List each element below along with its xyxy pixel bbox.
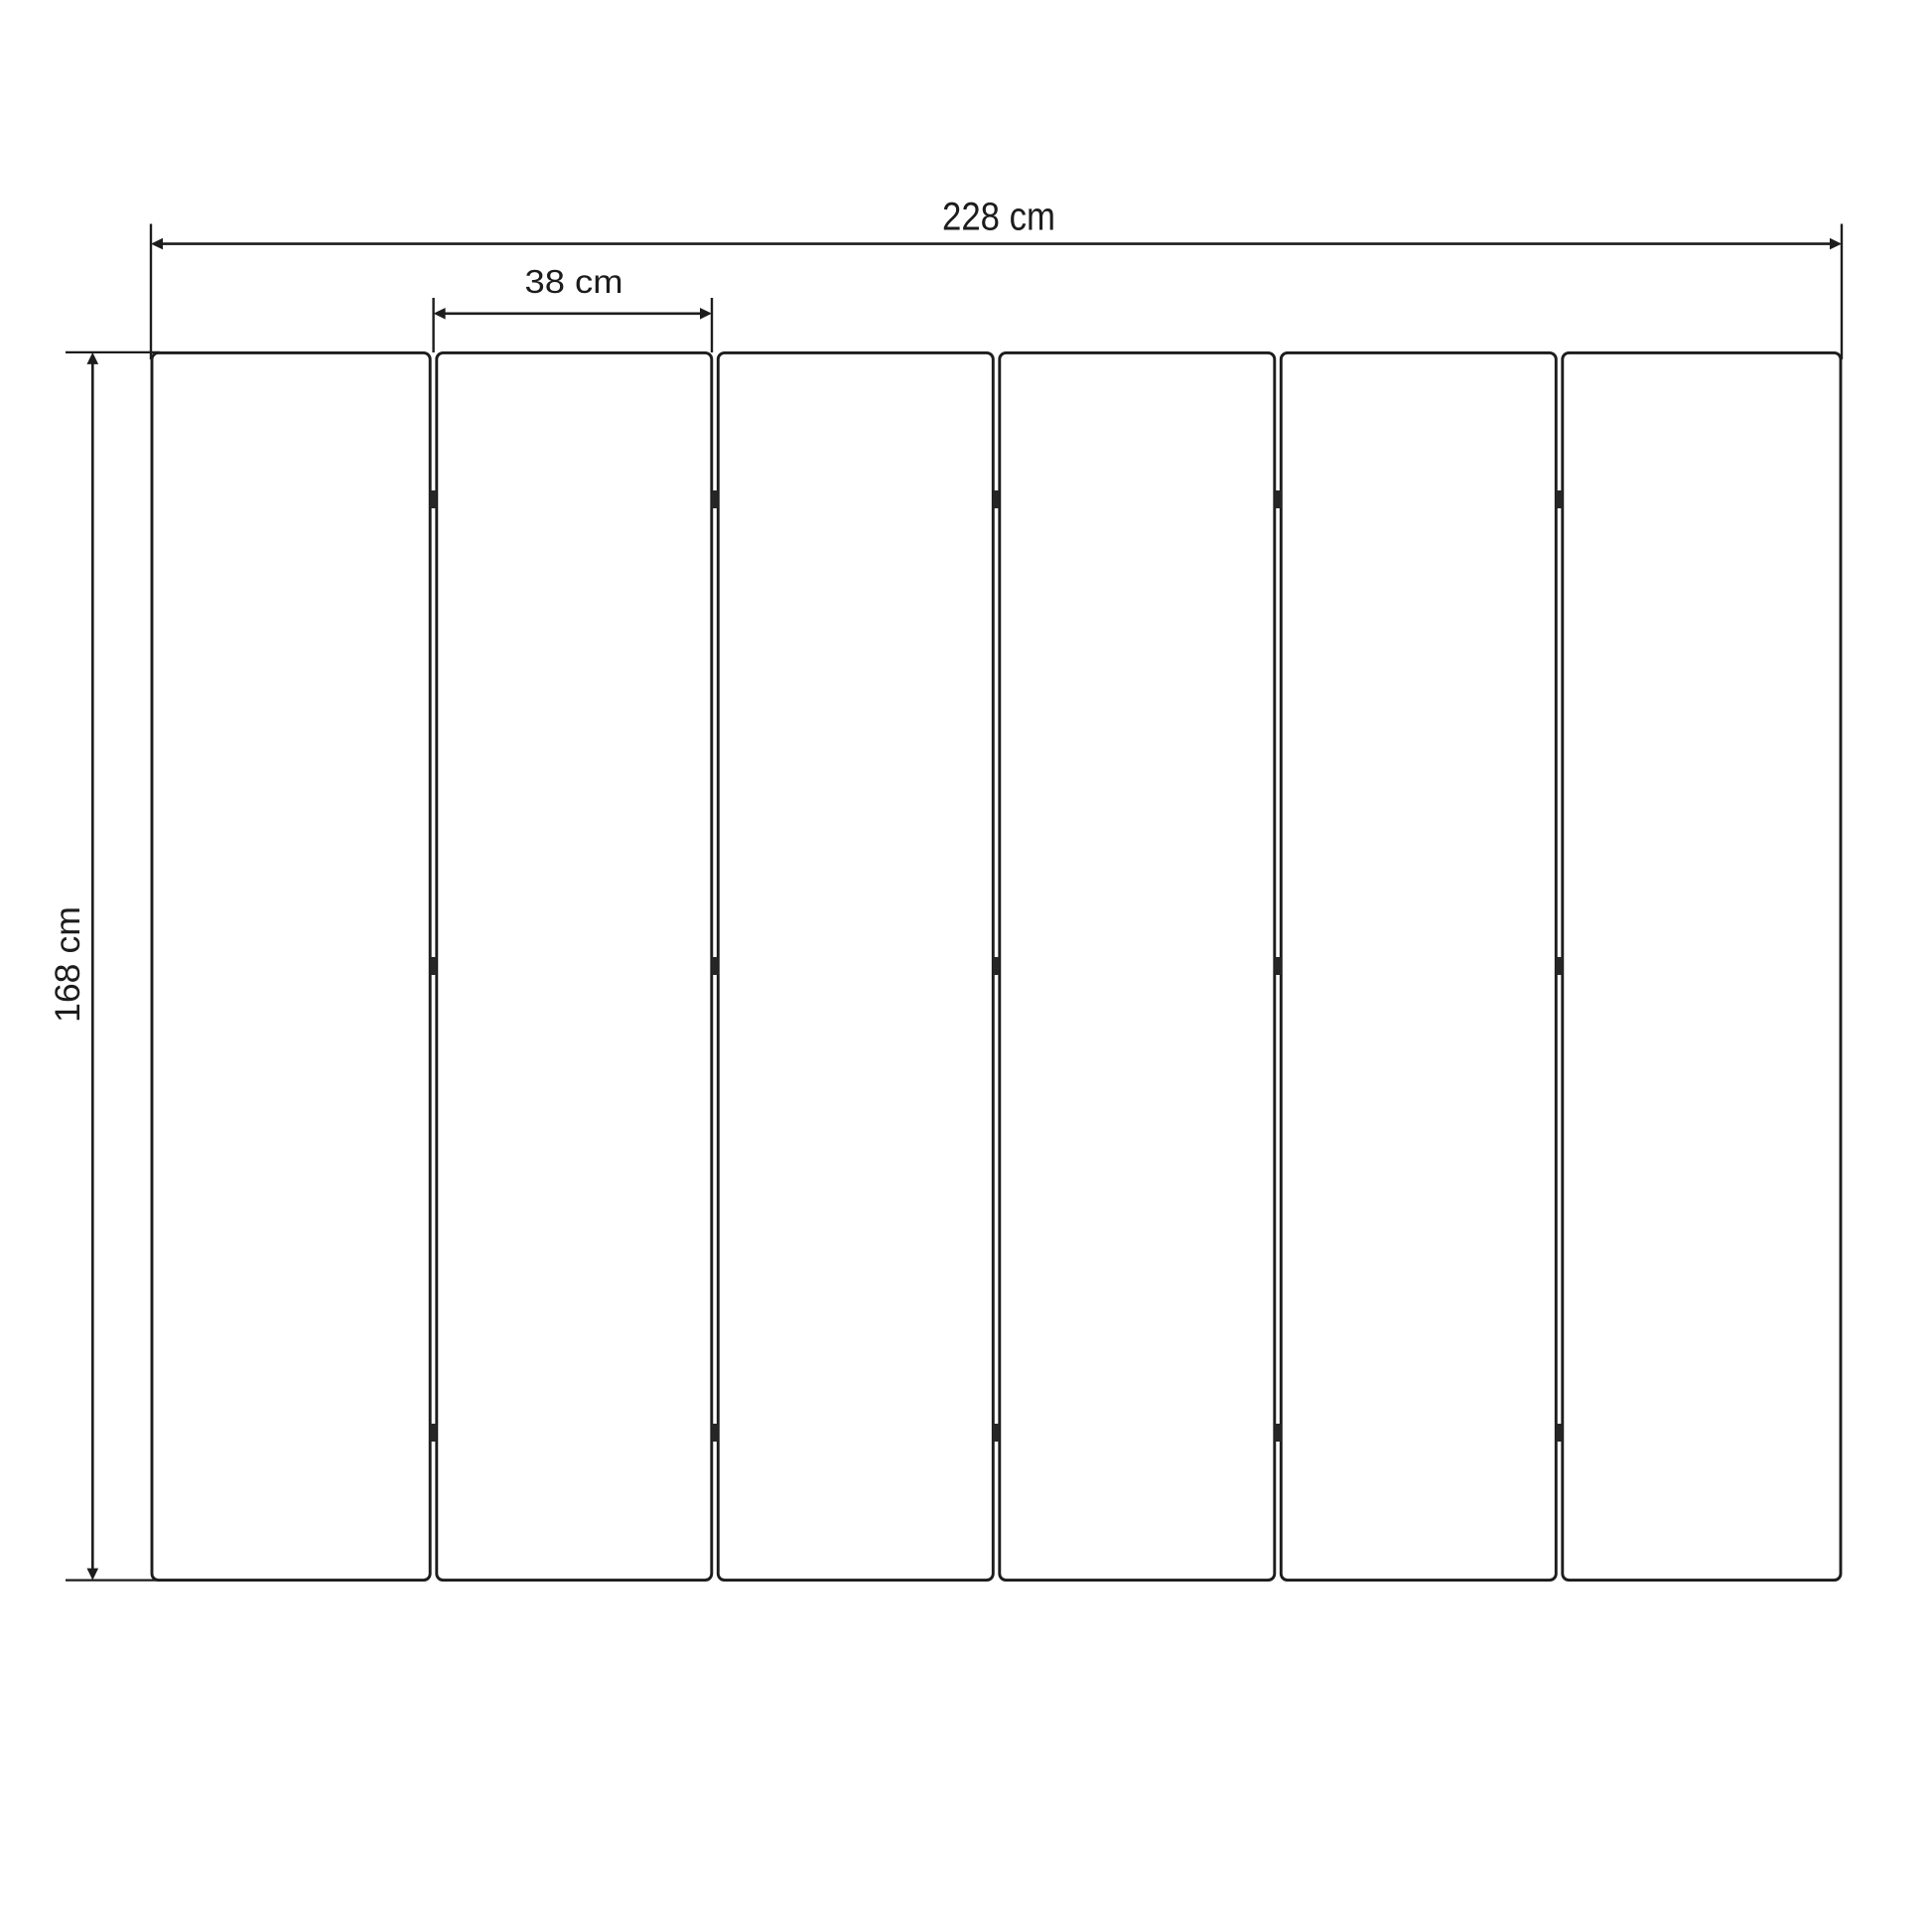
svg-text:168 cm: 168 cm [49,906,87,1023]
svg-text:228 cm: 228 cm [942,196,1055,239]
svg-text:38 cm: 38 cm [525,264,623,301]
